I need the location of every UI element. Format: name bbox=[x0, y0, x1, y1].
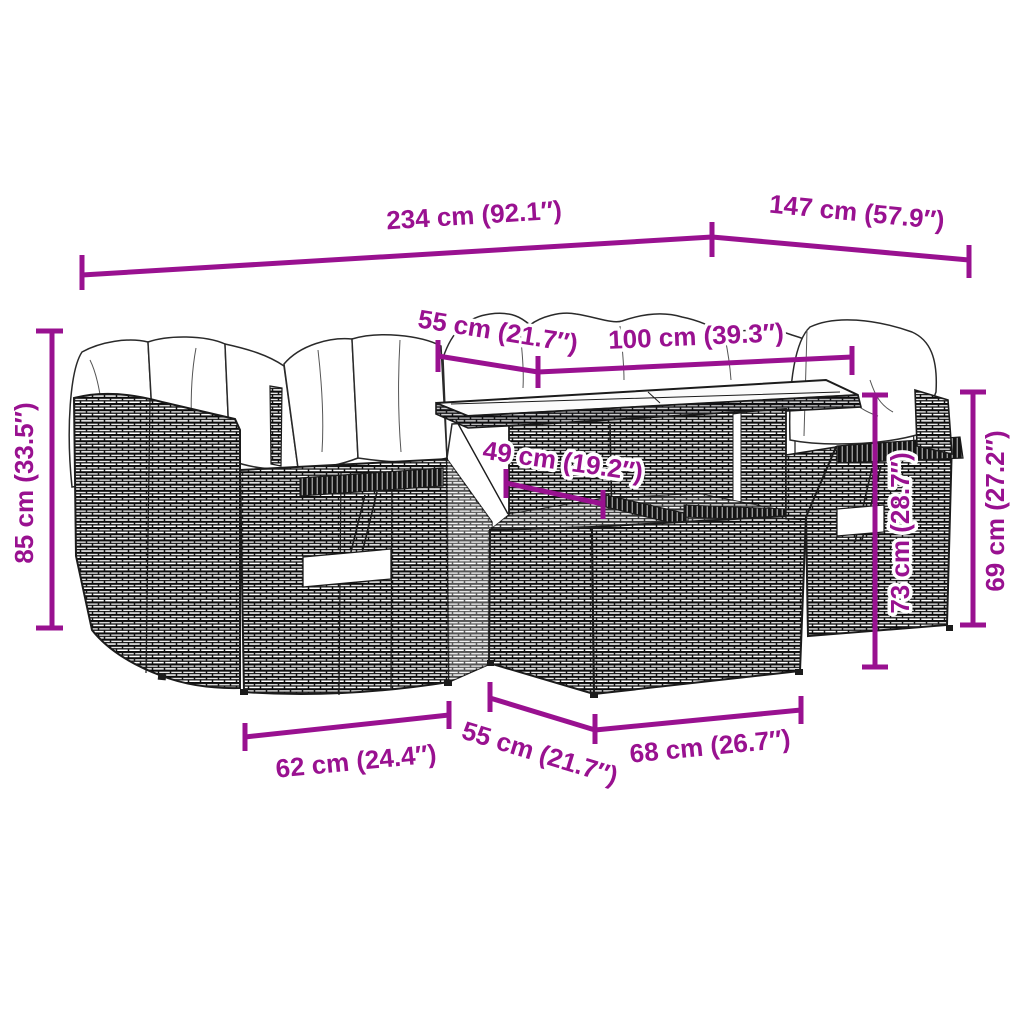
svg-text:73 cm (28.7″): 73 cm (28.7″) bbox=[885, 452, 915, 613]
svg-text:69 cm (27.2″): 69 cm (27.2″) bbox=[980, 430, 1010, 591]
svg-text:85 cm (33.5″): 85 cm (33.5″) bbox=[9, 402, 39, 563]
